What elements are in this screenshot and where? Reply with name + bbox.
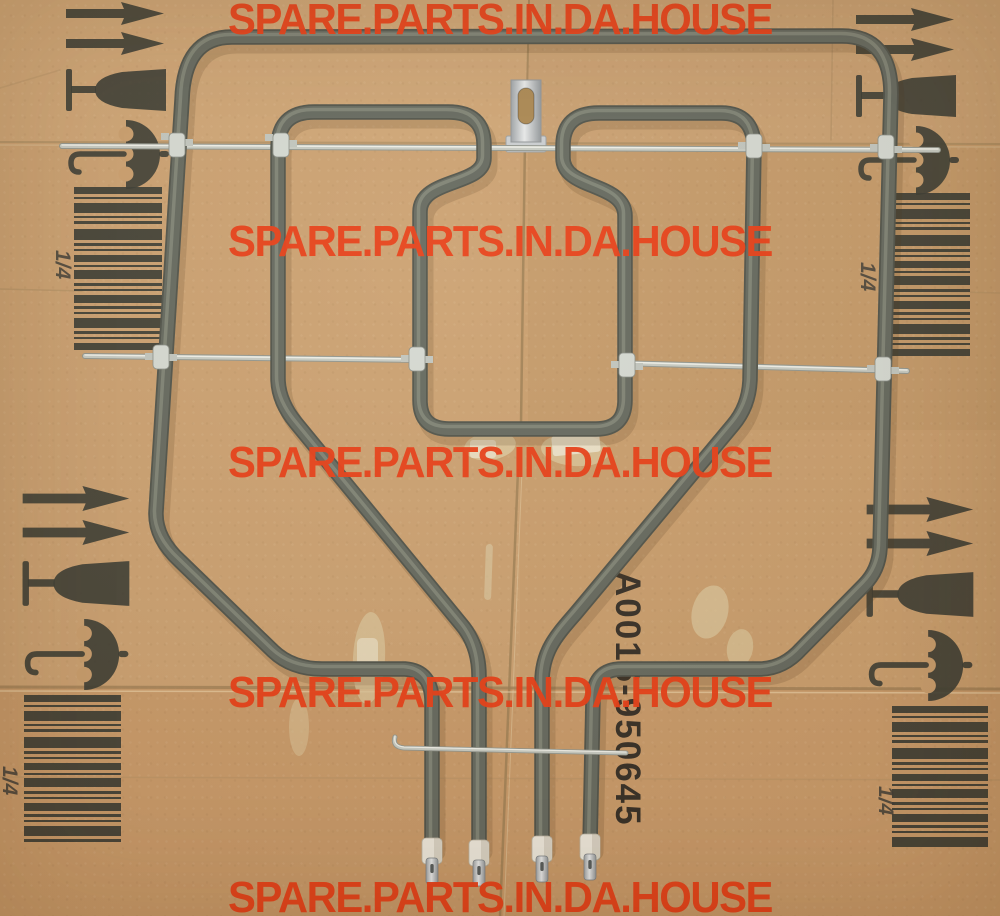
support-rod-bottom	[394, 736, 626, 753]
terminal	[532, 836, 552, 882]
cardboard-panel-top	[0, 0, 1000, 143]
terminal	[580, 834, 600, 880]
terminal	[469, 840, 489, 886]
fragile-wine-glass-icon	[856, 74, 958, 123]
keep-dry-umbrella-icon	[22, 618, 134, 695]
part-number-label: A0016-950645	[608, 571, 647, 827]
keep-dry-umbrella-icon	[866, 629, 978, 706]
element-tubes	[154, 34, 891, 845]
fraction-label: 1/4	[52, 250, 73, 279]
clamp	[738, 134, 770, 158]
watermark-text: SPARE.PARTS.IN.DA.HOUSE	[228, 876, 772, 916]
this-way-up-arrow-icon	[866, 531, 976, 561]
watermark-text: SPARE.PARTS.IN.DA.HOUSE	[228, 220, 772, 264]
cardboard-panel-left	[0, 143, 520, 688]
this-way-up-arrow-icon	[66, 32, 166, 60]
this-way-up-arrow-icon	[856, 8, 956, 36]
clamp	[401, 347, 433, 371]
support-rod-top	[62, 145, 938, 150]
this-way-up-arrow-icon	[856, 38, 956, 66]
watermark-text: SPARE.PARTS.IN.DA.HOUSE	[228, 671, 772, 715]
barcode-icon	[892, 706, 988, 849]
this-way-up-arrow-icon	[66, 2, 166, 30]
this-way-up-arrow-icon	[22, 520, 132, 550]
this-way-up-arrow-icon	[866, 497, 976, 527]
keep-dry-umbrella-icon	[856, 125, 964, 200]
clamp	[145, 345, 177, 369]
tube-highlight	[154, 34, 889, 842]
fraction-label: 1/4	[857, 262, 878, 291]
watermark-text: SPARE.PARTS.IN.DA.HOUSE	[228, 441, 772, 485]
fragile-wine-glass-icon	[22, 560, 132, 612]
barcode-icon	[74, 187, 162, 352]
cardboard-creases	[0, 0, 1000, 916]
this-way-up-arrow-icon	[22, 486, 132, 516]
fraction-label: 1/4	[875, 786, 896, 815]
terminal	[422, 838, 442, 884]
cardboard-panel-right	[528, 0, 1000, 430]
mounting-bracket	[506, 80, 546, 152]
fragile-wine-glass-icon	[866, 571, 976, 623]
clamp	[611, 353, 643, 377]
clamp	[870, 135, 902, 159]
rod-clamps	[145, 133, 902, 381]
support-rods	[62, 145, 938, 371]
barcode-icon	[24, 695, 121, 843]
clamp	[867, 357, 899, 381]
cardboard-panel-bottom	[0, 688, 1000, 916]
inner-loop-tube	[278, 112, 754, 844]
outer-loop-tube	[156, 36, 891, 844]
torn-tape-marks	[289, 429, 756, 756]
clamp	[265, 133, 297, 157]
product-photo: A0016-950645 1/4 1/4 1/4 1/4	[0, 0, 1000, 916]
fragile-wine-glass-icon	[66, 68, 168, 117]
support-rod-mid-left	[85, 355, 424, 360]
element-shadow	[161, 44, 896, 852]
barcode-icon	[882, 193, 970, 358]
clamp	[161, 133, 193, 157]
heating-element	[0, 0, 1000, 916]
support-rod-mid-right	[619, 362, 907, 371]
watermark-text: SPARE.PARTS.IN.DA.HOUSE	[228, 0, 772, 42]
keep-dry-umbrella-icon	[66, 119, 174, 194]
fraction-label: 1/4	[0, 766, 20, 795]
terminals	[422, 834, 600, 886]
